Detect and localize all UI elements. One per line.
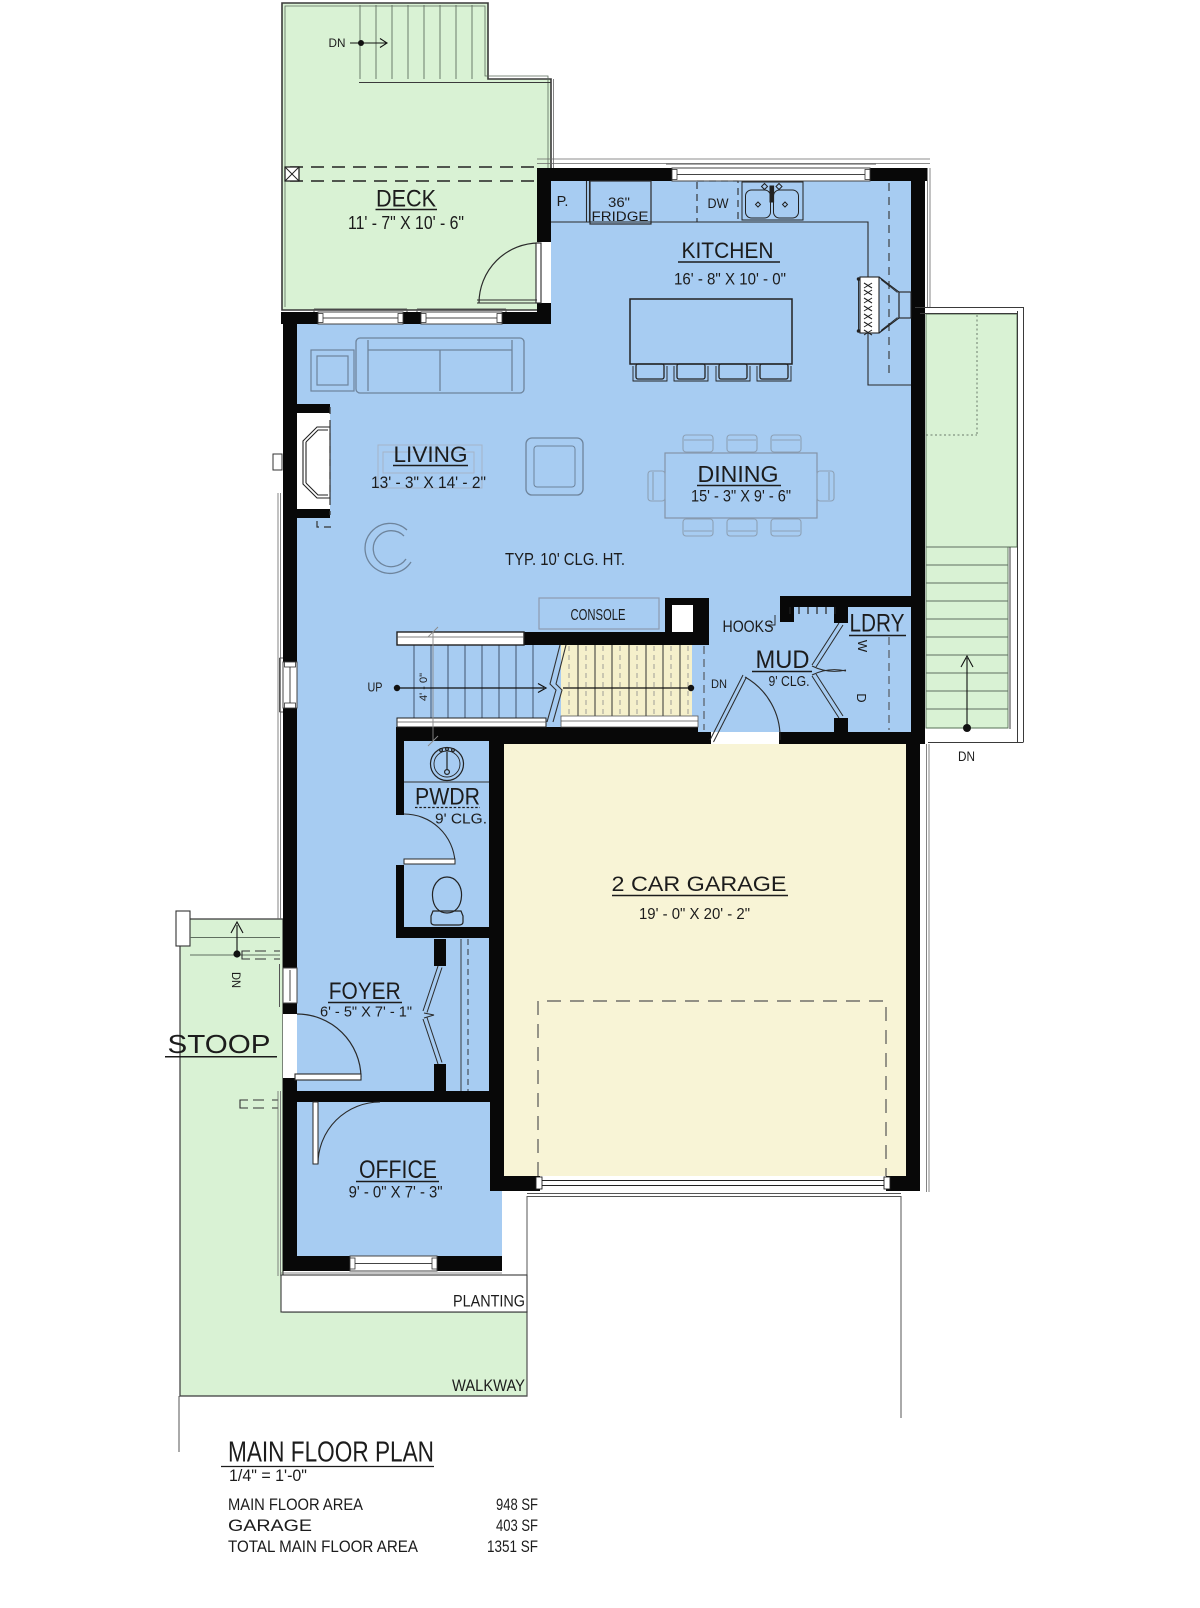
svg-text:2 CAR GARAGE: 2 CAR GARAGE bbox=[612, 872, 787, 896]
svg-text:PWDR: PWDR bbox=[415, 784, 480, 811]
svg-text:TOTAL MAIN FLOOR AREA: TOTAL MAIN FLOOR AREA bbox=[228, 1538, 418, 1556]
svg-text:MAIN FLOOR AREA: MAIN FLOOR AREA bbox=[228, 1496, 363, 1514]
svg-text:9' CLG.: 9' CLG. bbox=[435, 812, 487, 828]
svg-text:DECK: DECK bbox=[376, 186, 436, 213]
svg-text:9' - 0" X 7' - 3": 9' - 0" X 7' - 3" bbox=[349, 1183, 443, 1202]
svg-text:FRIDGE: FRIDGE bbox=[592, 209, 649, 224]
svg-text:MUD: MUD bbox=[756, 646, 810, 674]
svg-text:15' - 3" X 9' - 6": 15' - 3" X 9' - 6" bbox=[691, 488, 791, 506]
svg-text:DN: DN bbox=[229, 972, 243, 988]
svg-text:KITCHEN: KITCHEN bbox=[682, 238, 774, 263]
svg-text:1/4" = 1'-0": 1/4" = 1'-0" bbox=[229, 1467, 307, 1485]
svg-text:TYP. 10' CLG. HT.: TYP. 10' CLG. HT. bbox=[505, 549, 625, 569]
svg-text:DN: DN bbox=[711, 679, 727, 691]
svg-text:UP: UP bbox=[368, 681, 383, 695]
svg-text:DINING: DINING bbox=[698, 461, 779, 487]
svg-text:6' - 5" X 7' - 1": 6' - 5" X 7' - 1" bbox=[320, 1004, 412, 1021]
svg-text:OFFICE: OFFICE bbox=[359, 1156, 437, 1184]
svg-text:D: D bbox=[854, 693, 869, 702]
svg-text:36": 36" bbox=[608, 195, 630, 210]
svg-text:16' - 8" X 10' - 0": 16' - 8" X 10' - 0" bbox=[674, 270, 786, 289]
svg-text:LIVING: LIVING bbox=[394, 442, 468, 467]
svg-text:W: W bbox=[855, 640, 870, 653]
svg-text:11' - 7" X 10' - 6": 11' - 7" X 10' - 6" bbox=[348, 212, 464, 233]
svg-text:FOYER: FOYER bbox=[329, 978, 401, 1005]
svg-text:WALKWAY: WALKWAY bbox=[452, 1377, 525, 1395]
svg-text:13' - 3" X 14' - 2": 13' - 3" X 14' - 2" bbox=[371, 473, 486, 492]
svg-text:GARAGE: GARAGE bbox=[228, 1517, 312, 1535]
svg-text:P.: P. bbox=[557, 194, 569, 210]
svg-text:403 SF: 403 SF bbox=[496, 1517, 538, 1535]
svg-text:19' - 0" X 20' - 2": 19' - 0" X 20' - 2" bbox=[639, 906, 750, 923]
svg-text:DN: DN bbox=[329, 38, 346, 50]
svg-text:CONSOLE: CONSOLE bbox=[571, 607, 626, 624]
svg-text:PLANTING: PLANTING bbox=[453, 1293, 525, 1311]
svg-text:MAIN FLOOR PLAN: MAIN FLOOR PLAN bbox=[228, 1437, 434, 1469]
svg-text:DN: DN bbox=[958, 748, 975, 764]
svg-text:4' - 0": 4' - 0" bbox=[418, 673, 430, 701]
svg-text:STOOP: STOOP bbox=[168, 1031, 271, 1059]
svg-text:DW: DW bbox=[708, 195, 730, 211]
svg-text:9' CLG.: 9' CLG. bbox=[769, 673, 810, 690]
svg-text:HOOKS: HOOKS bbox=[723, 617, 774, 636]
svg-text:LDRY: LDRY bbox=[850, 610, 905, 638]
svg-text:948 SF: 948 SF bbox=[496, 1496, 538, 1514]
svg-text:1351 SF: 1351 SF bbox=[487, 1538, 538, 1556]
